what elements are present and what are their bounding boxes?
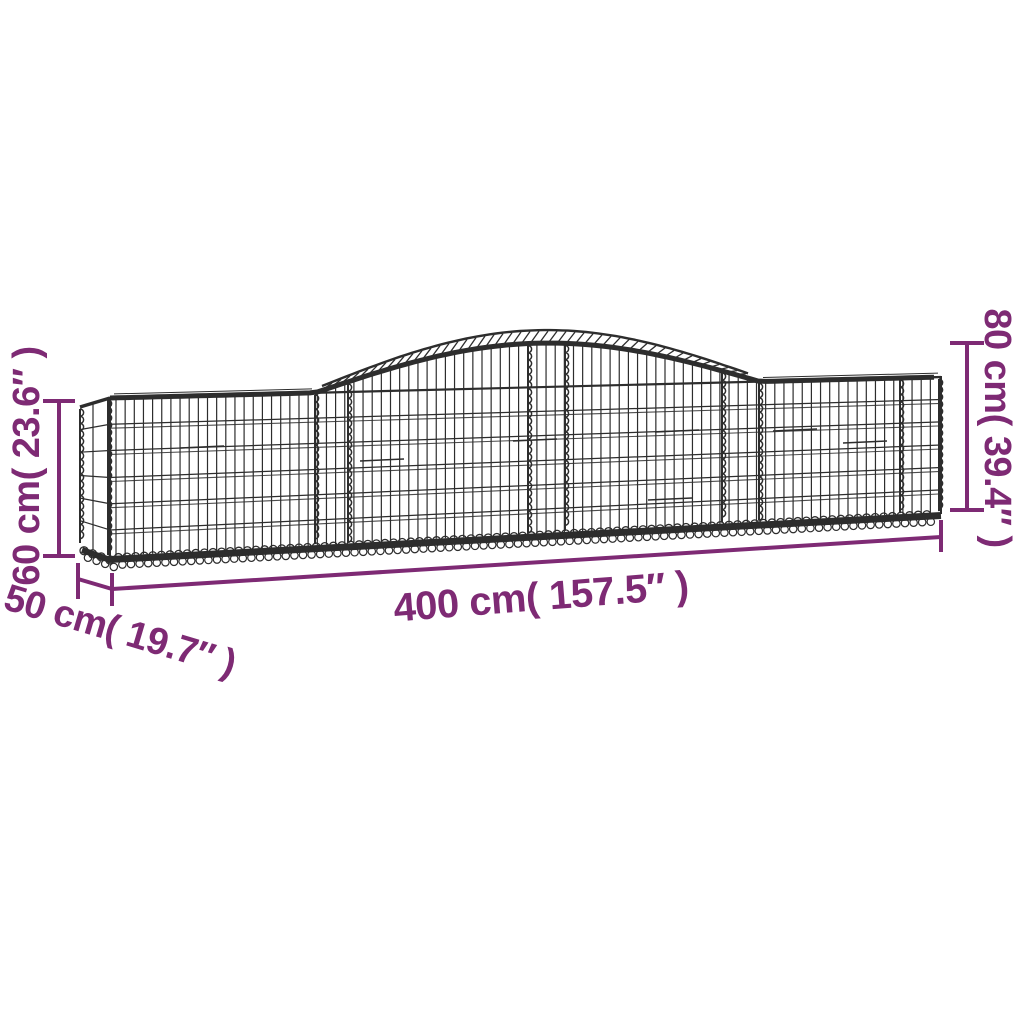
gabion-basket-illustration <box>80 330 943 571</box>
height-right-dimension: 80 cm( 39.4″ ) <box>950 308 1018 547</box>
height-left-dimension: 60 cm( 23.6″ ) <box>6 346 75 585</box>
depth-dimension-line <box>78 579 112 589</box>
height-left-label: 60 cm( 23.6″ ) <box>6 346 48 585</box>
top-rim <box>110 343 934 398</box>
height-right-label: 80 cm( 39.4″ ) <box>976 308 1018 547</box>
left-end-panel <box>80 398 110 550</box>
depth-label: 50 cm( 19.7″ ) <box>0 577 241 685</box>
arch-top-face <box>114 330 938 394</box>
gabion-dimension-diagram: 60 cm( 23.6″ ) 80 cm( 39.4″ ) 400 cm( 15… <box>0 0 1024 1024</box>
diagram-canvas: 60 cm( 23.6″ ) 80 cm( 39.4″ ) 400 cm( 15… <box>0 0 1024 1024</box>
length-label: 400 cm( 157.5″ ) <box>392 563 690 630</box>
